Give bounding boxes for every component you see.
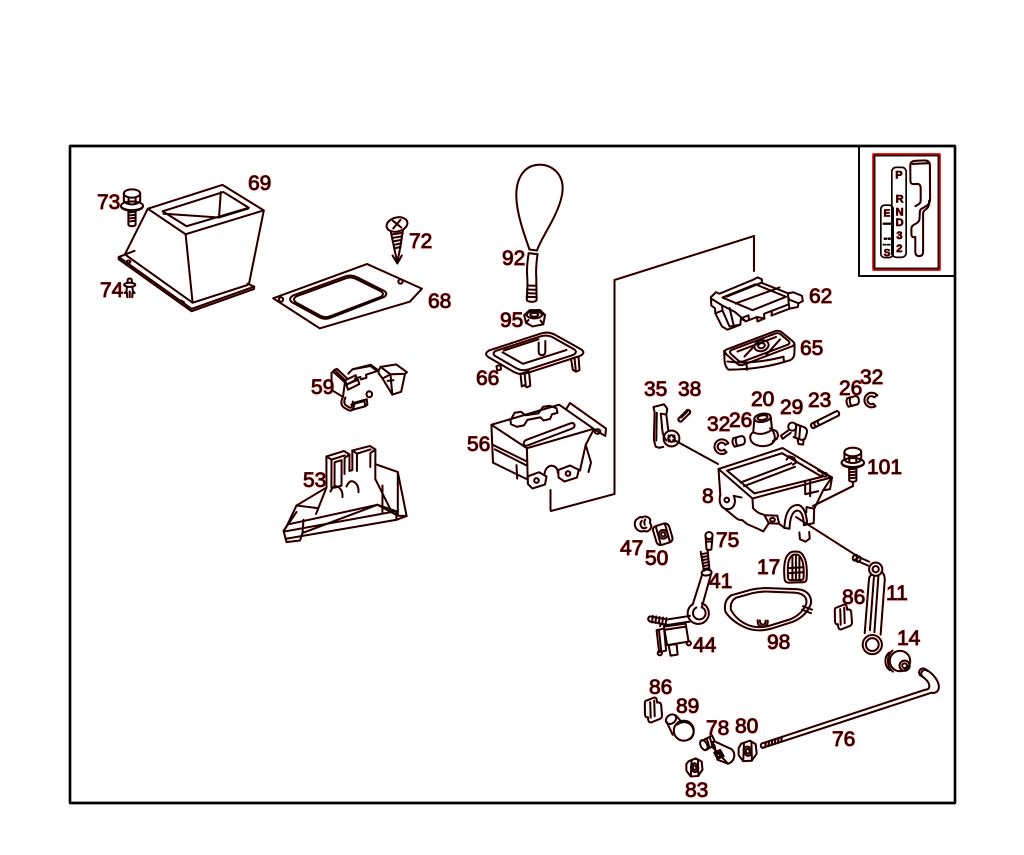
svg-text:68: 68 (428, 290, 451, 313)
svg-text:53: 53 (303, 469, 326, 492)
svg-text:65: 65 (800, 337, 823, 360)
svg-text:2: 2 (896, 243, 902, 255)
svg-text:32: 32 (860, 366, 883, 389)
svg-text:26: 26 (729, 409, 752, 432)
svg-text:11: 11 (886, 582, 908, 605)
svg-text:14: 14 (897, 627, 921, 650)
svg-text:44: 44 (693, 634, 717, 657)
svg-text:78: 78 (706, 717, 729, 740)
svg-text:P: P (895, 170, 902, 182)
svg-text:69: 69 (248, 172, 271, 195)
svg-text:32: 32 (707, 413, 730, 436)
svg-text:50: 50 (645, 547, 668, 570)
svg-text:S: S (884, 248, 891, 259)
svg-text:89: 89 (676, 695, 699, 718)
svg-text:20: 20 (751, 388, 774, 411)
svg-text:56: 56 (467, 433, 490, 456)
svg-text:73: 73 (97, 191, 120, 214)
svg-text:98: 98 (767, 631, 790, 654)
svg-text:35: 35 (644, 378, 667, 401)
svg-text:72: 72 (409, 230, 432, 253)
svg-text:95: 95 (500, 309, 523, 332)
svg-text:38: 38 (678, 378, 701, 401)
svg-text:86: 86 (842, 586, 865, 609)
svg-text:62: 62 (809, 285, 832, 308)
svg-text:76: 76 (832, 728, 855, 751)
svg-text:92: 92 (502, 247, 525, 270)
svg-text:86: 86 (649, 676, 672, 699)
svg-text:3: 3 (896, 230, 902, 242)
svg-text:23: 23 (808, 389, 831, 412)
svg-text:17: 17 (757, 556, 780, 579)
svg-text:47: 47 (620, 537, 643, 560)
svg-text:E: E (884, 209, 891, 220)
svg-text:101: 101 (867, 456, 902, 479)
svg-text:66: 66 (476, 367, 499, 390)
svg-text:75: 75 (716, 529, 739, 552)
svg-text:26: 26 (839, 377, 862, 400)
svg-text:80: 80 (735, 715, 758, 738)
svg-text:R: R (896, 194, 904, 206)
svg-text:83: 83 (685, 779, 708, 802)
svg-text:74: 74 (100, 279, 124, 302)
svg-text:D: D (896, 217, 904, 229)
svg-text:59: 59 (311, 376, 334, 399)
svg-text:41: 41 (709, 570, 732, 593)
svg-text:8: 8 (702, 485, 714, 508)
svg-text:29: 29 (780, 396, 803, 419)
